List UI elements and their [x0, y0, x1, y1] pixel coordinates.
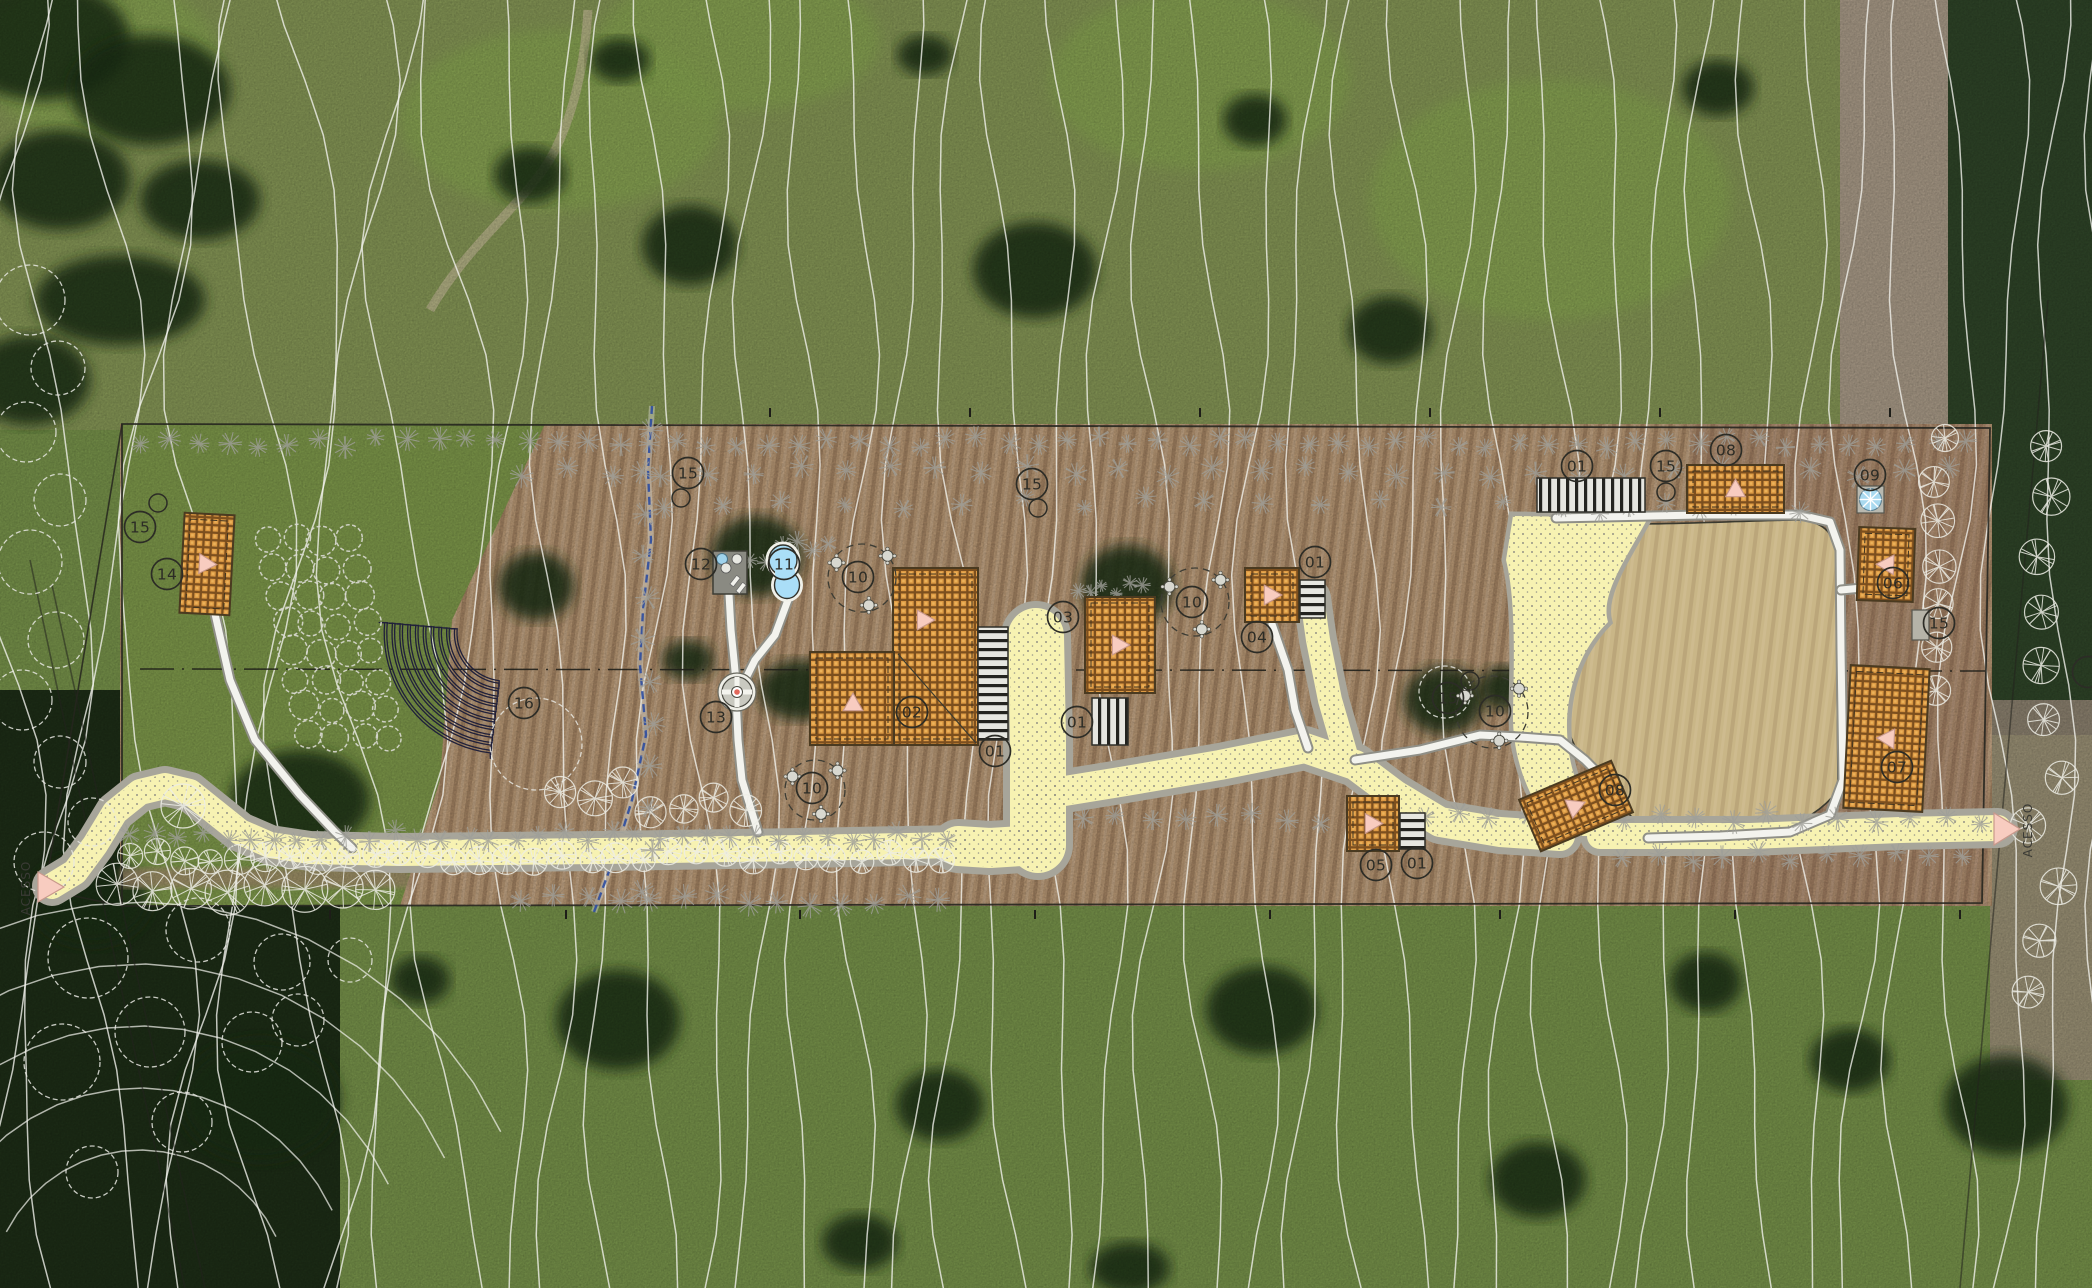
callout-number: 16: [514, 695, 534, 713]
station-tick: [799, 910, 801, 919]
station-tick: [769, 408, 771, 417]
building-footprint: [1245, 568, 1299, 622]
building-footprint: [1687, 465, 1784, 513]
callout-number: 15: [678, 465, 698, 483]
callout-number: 01: [985, 743, 1005, 761]
callout-number: 10: [1182, 594, 1202, 612]
callout-number: 15: [130, 519, 150, 537]
station-tick: [1959, 910, 1961, 919]
callout-number: 14: [157, 566, 177, 584]
site-plan-canvas: 1514151211101316100201010310040115050115…: [0, 0, 2092, 1288]
callout-number: 13: [706, 709, 726, 727]
callout-number: 08: [1605, 782, 1625, 800]
callout-number: 15: [1438, 690, 1458, 708]
station-tick: [565, 910, 567, 919]
fountain: [718, 673, 756, 711]
pergola: [1092, 698, 1128, 745]
site-plan: 1514151211101316100201010310040115050115…: [0, 0, 2092, 1288]
station-tick: [1199, 408, 1201, 417]
station-tick: [1499, 910, 1501, 919]
callout-number: 15: [1656, 458, 1676, 476]
pergola: [1400, 813, 1425, 849]
pergola: [978, 627, 1008, 740]
callout-number: 04: [1247, 629, 1267, 647]
station-tick: [1659, 408, 1661, 417]
callout-number: 02: [902, 704, 922, 722]
station-tick: [1429, 408, 1431, 417]
pergola: [1300, 580, 1325, 618]
callout-number: 09: [1860, 467, 1880, 485]
callout-number: 01: [1305, 554, 1325, 572]
station-tick: [969, 408, 971, 417]
callout-number: 01: [1567, 458, 1587, 476]
deck: [713, 551, 747, 594]
building-footprint: [179, 513, 234, 615]
callout-number: 01: [1067, 714, 1087, 732]
station-tick: [1034, 910, 1036, 919]
station-tick: [1734, 910, 1736, 919]
station-tick: [1269, 910, 1271, 919]
callout-number: 10: [802, 780, 822, 798]
callout-number: 08: [1716, 442, 1736, 460]
callout-number: 10: [1485, 703, 1505, 721]
pergola: [1537, 478, 1645, 512]
building-footprint: [1085, 597, 1155, 693]
callout-number: 06: [1883, 575, 1903, 593]
station-tick: [329, 910, 331, 919]
callout-number: 15: [1929, 615, 1949, 633]
building-footprint: [810, 652, 894, 745]
existing-bush: [1953, 848, 1971, 866]
access-label: ACESSO: [19, 861, 33, 916]
callout-number: 05: [1366, 857, 1386, 875]
callout-number: 12: [691, 556, 711, 574]
station-tick: [1889, 408, 1891, 417]
callout-number: 03: [1053, 609, 1073, 627]
callout-number: 01: [1407, 855, 1427, 873]
building-footprint: [1347, 796, 1399, 851]
callout-number: 11: [774, 556, 794, 574]
building-footprint: [1843, 665, 1929, 812]
callout-number: 15: [1022, 476, 1042, 494]
access-label: ACESSO: [2021, 803, 2035, 858]
callout-number: 07: [1887, 759, 1907, 777]
callout-number: 10: [848, 569, 868, 587]
